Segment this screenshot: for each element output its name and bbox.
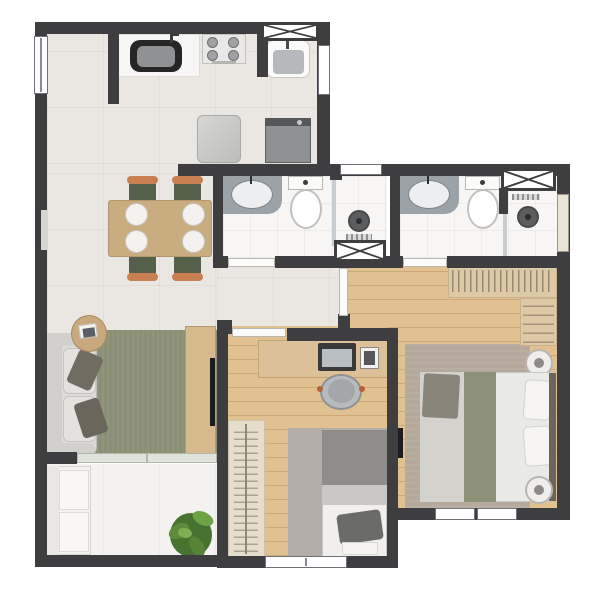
- balcony-bench-cushion: [59, 512, 89, 552]
- bath2-toilet-bowl: [467, 189, 499, 229]
- photo-frame-image: [364, 351, 375, 365]
- plate: [125, 230, 148, 253]
- shaft-service: [261, 22, 319, 41]
- refrigerator: [197, 115, 241, 163]
- bath1-toilet-bowl: [290, 189, 322, 229]
- window-master-1: [435, 508, 475, 520]
- laundry-tank-basin: [273, 50, 304, 74]
- dining-chair: [174, 255, 201, 275]
- shaft-x-icon: [504, 171, 553, 188]
- stove-burner: [228, 37, 239, 48]
- bath1-sink: [231, 180, 273, 209]
- single-bed-pillow: [336, 509, 384, 545]
- door-master-bedroom: [339, 268, 348, 316]
- nightstand-dot: [534, 485, 544, 495]
- office-chair-arm: [317, 386, 323, 392]
- wall-balcony-bottom: [35, 555, 228, 567]
- plate: [125, 203, 148, 226]
- wall-bath1-west: [213, 164, 223, 268]
- wall-office-north-b: [287, 328, 398, 341]
- balcony-bench-cushion: [59, 470, 89, 510]
- door-bathroom2: [403, 258, 447, 267]
- bath1-shower-glass: [332, 178, 336, 246]
- wall-bath2-west: [390, 164, 400, 260]
- shaft-x-icon: [337, 243, 383, 259]
- master-bed-olive-blanket: [464, 372, 496, 502]
- bath2-toilet-button: [480, 180, 485, 185]
- stove-burner: [207, 37, 218, 48]
- stove-knobs: [212, 61, 236, 64]
- stove-burner: [228, 50, 239, 61]
- window-master-2: [477, 508, 517, 520]
- window-bath1-vent: [340, 164, 382, 175]
- wall-bath-south-c: [447, 256, 557, 268]
- wall-kitchen-stub: [108, 22, 119, 104]
- tv: [210, 358, 215, 426]
- dining-chair-bar: [127, 273, 158, 281]
- shaft-x-icon: [264, 25, 316, 38]
- washing-machine-panel: [265, 118, 311, 126]
- master-wardrobe-shelves: [523, 301, 554, 343]
- plate: [182, 230, 205, 253]
- dining-chair: [129, 182, 156, 202]
- bath2-grate-icon: [512, 194, 540, 200]
- sliding-door-panel: [77, 453, 147, 463]
- window-service: [318, 45, 330, 95]
- stove-burner: [207, 50, 218, 61]
- washing-machine-knob: [297, 120, 302, 125]
- office-wardrobe-rail: [245, 424, 247, 554]
- wall-office-east: [387, 334, 398, 568]
- wall-balcony-divider: [35, 452, 77, 464]
- bath1-toilet-button: [303, 180, 308, 185]
- wall-office-north-a: [217, 320, 232, 334]
- bath2-shower-head-dot: [525, 214, 531, 220]
- single-bed-blanket: [322, 430, 387, 485]
- shaft-bathroom2: [501, 168, 556, 191]
- plate: [182, 203, 205, 226]
- side-table-book: [82, 327, 95, 338]
- master-pillow: [523, 425, 553, 467]
- single-bed-pillow-white: [342, 542, 378, 555]
- window-bath2-side: [557, 194, 569, 252]
- single-bed-blanket-fold: [322, 485, 387, 505]
- floor-plan: [0, 0, 600, 600]
- dining-chair: [129, 255, 156, 275]
- wall-bath2-shower-stub: [499, 188, 508, 214]
- dining-chair-bar: [172, 273, 203, 281]
- wall-office-west: [217, 334, 228, 568]
- bath1-shower-drain-dot: [356, 218, 362, 224]
- office-chair-arm: [359, 386, 365, 392]
- shaft-bathroom1: [334, 240, 386, 262]
- wall-left: [35, 22, 47, 567]
- sofa-back: [47, 333, 62, 457]
- dining-chair: [174, 182, 201, 202]
- dining-chair-bar: [127, 176, 158, 184]
- sliding-door-panel: [147, 453, 217, 463]
- laundry-faucet-icon: [286, 41, 289, 49]
- wall-bath-south-a: [213, 256, 228, 268]
- window-living-left-frame: [40, 38, 42, 92]
- nightstand-dot: [534, 358, 544, 368]
- balcony-bench-back: [47, 466, 59, 555]
- window-sill-left: [41, 210, 48, 250]
- master-wall-tv: [398, 428, 403, 458]
- bath2-sink: [408, 180, 450, 209]
- laptop-screen: [322, 349, 352, 367]
- master-wardrobe-hangers: [452, 270, 553, 292]
- office-chair-seat: [328, 379, 355, 403]
- corridor-floor: [217, 258, 341, 334]
- door-bathroom1: [228, 258, 275, 267]
- kitchen-sink-basin: [137, 46, 175, 67]
- window-office-frame: [305, 558, 307, 566]
- door-office: [232, 328, 286, 337]
- dining-chair-bar: [172, 176, 203, 184]
- master-pillow: [523, 379, 553, 421]
- master-bed-gray-throw: [422, 373, 460, 419]
